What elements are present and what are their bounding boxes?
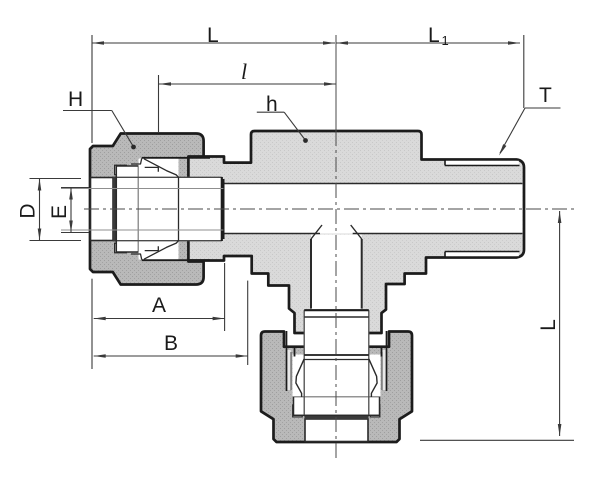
svg-text:T: T bbox=[539, 84, 552, 107]
svg-text:B: B bbox=[164, 332, 178, 355]
svg-text:L: L bbox=[207, 24, 219, 47]
svg-text:l: l bbox=[241, 59, 247, 84]
svg-text:D: D bbox=[17, 203, 40, 218]
svg-text:H: H bbox=[68, 88, 83, 111]
svg-text:L: L bbox=[537, 319, 560, 331]
svg-text:1: 1 bbox=[442, 33, 449, 48]
svg-text:L: L bbox=[428, 24, 440, 47]
svg-text:E: E bbox=[48, 205, 71, 219]
svg-text:A: A bbox=[152, 294, 166, 317]
